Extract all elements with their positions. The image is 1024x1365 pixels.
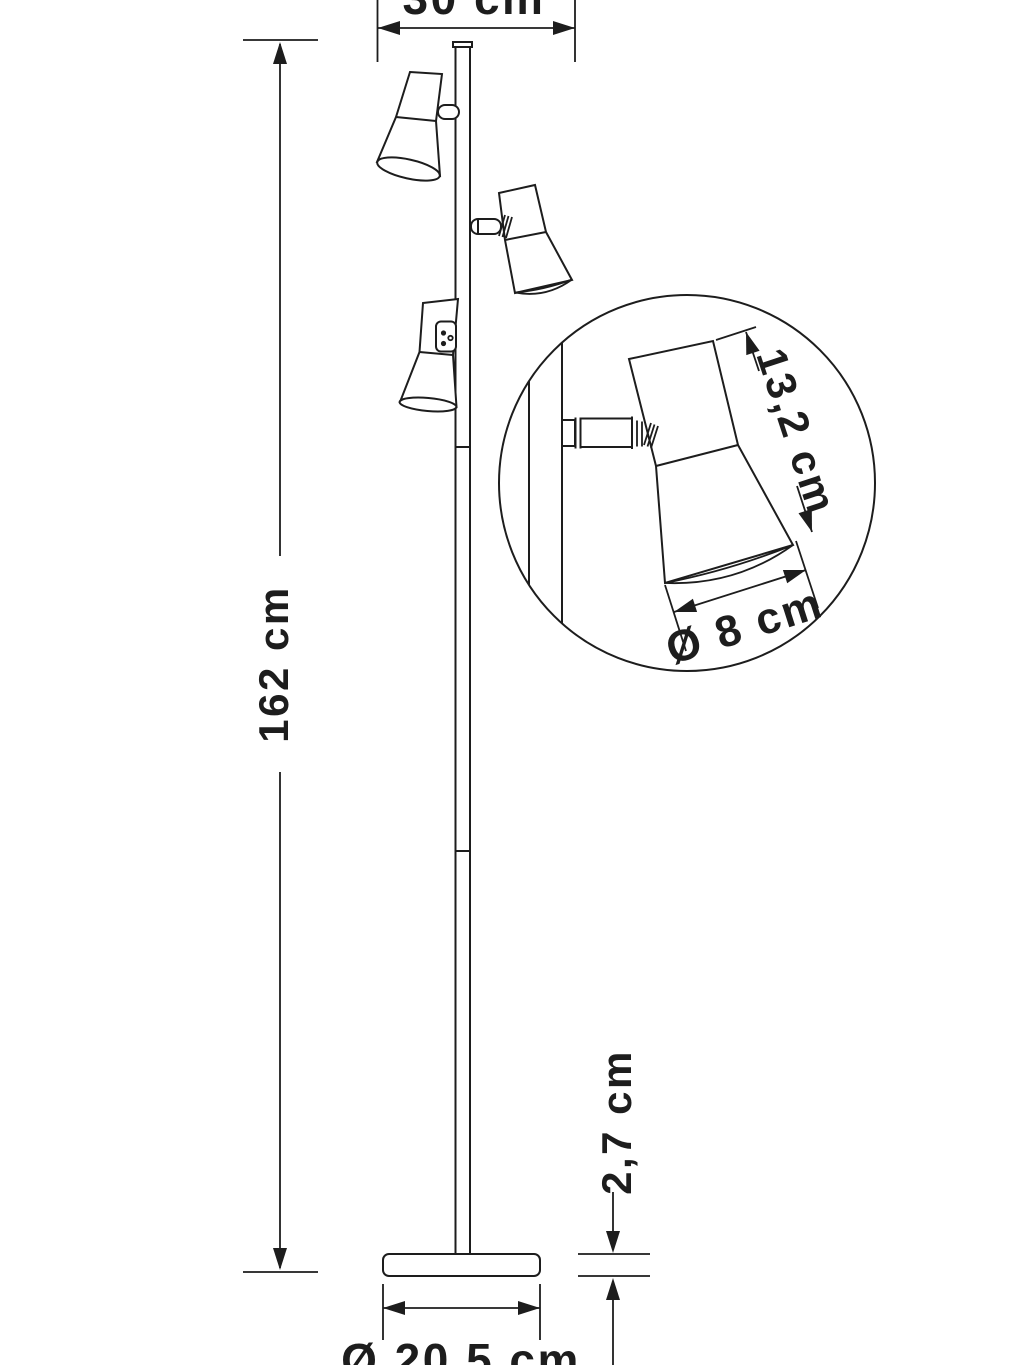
switch-dot — [441, 330, 446, 335]
dimension-label-base-height: 2,7 cm — [593, 1049, 640, 1195]
lamp-head-right — [471, 185, 572, 294]
diagram-canvas: 13,2 cm Ø 8 cm 30 cm 162 cm 2,7 cm — [0, 0, 1024, 1365]
dimension-label-top-width: 30 cm — [403, 0, 546, 24]
lamp-dimension-diagram: 13,2 cm Ø 8 cm 30 cm 162 cm 2,7 cm — [0, 0, 1024, 1365]
pole-top-cap — [453, 42, 472, 47]
lamp-head-top-left — [375, 72, 459, 185]
arrowhead — [273, 1248, 287, 1270]
lamp-pole — [453, 42, 472, 1254]
arrowhead — [383, 1301, 405, 1315]
lamp-head-lower-left — [399, 299, 458, 413]
detail-circle-inset: 13,2 cm Ø 8 cm — [499, 295, 875, 674]
lamp-arm-joint — [471, 219, 501, 234]
arrowhead — [606, 1231, 620, 1253]
arrowhead — [553, 21, 575, 35]
dimension-base-diameter: Ø 20,5 cm — [341, 1284, 581, 1365]
lamp-base — [383, 1254, 540, 1276]
arrowhead — [378, 21, 400, 35]
dimension-base-height: 2,7 cm — [578, 1049, 650, 1365]
lamp-arm-joint — [438, 105, 459, 119]
arrowhead — [518, 1301, 540, 1315]
switch-dot — [441, 341, 446, 346]
dimension-label-total-height: 162 cm — [250, 585, 297, 742]
dimension-label-base-diameter: Ø 20,5 cm — [341, 1334, 581, 1365]
arrowhead — [273, 42, 287, 64]
dimension-total-height: 162 cm — [243, 40, 318, 1272]
dimension-top-width: 30 cm — [378, 0, 576, 62]
arrowhead — [606, 1278, 620, 1300]
